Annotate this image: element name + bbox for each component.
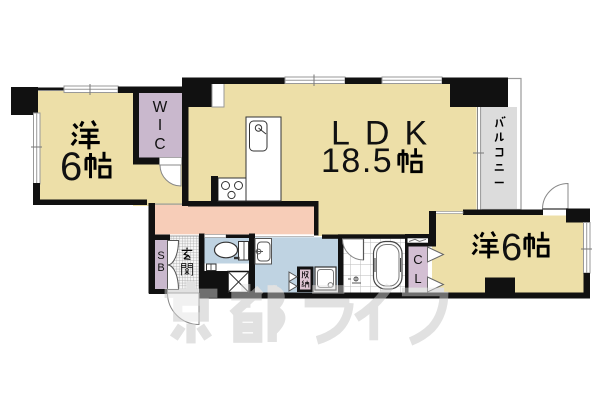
svg-text:I: I (158, 117, 162, 134)
svg-text:W: W (153, 99, 168, 116)
svg-text:6: 6 (501, 227, 522, 269)
svg-text:C: C (413, 252, 422, 267)
svg-text:6: 6 (60, 145, 82, 189)
svg-text:L: L (414, 271, 421, 286)
svg-text:18.5: 18.5 (321, 142, 393, 180)
svg-text:S: S (157, 250, 164, 262)
svg-text:B: B (157, 262, 164, 274)
svg-text:C: C (154, 136, 165, 153)
